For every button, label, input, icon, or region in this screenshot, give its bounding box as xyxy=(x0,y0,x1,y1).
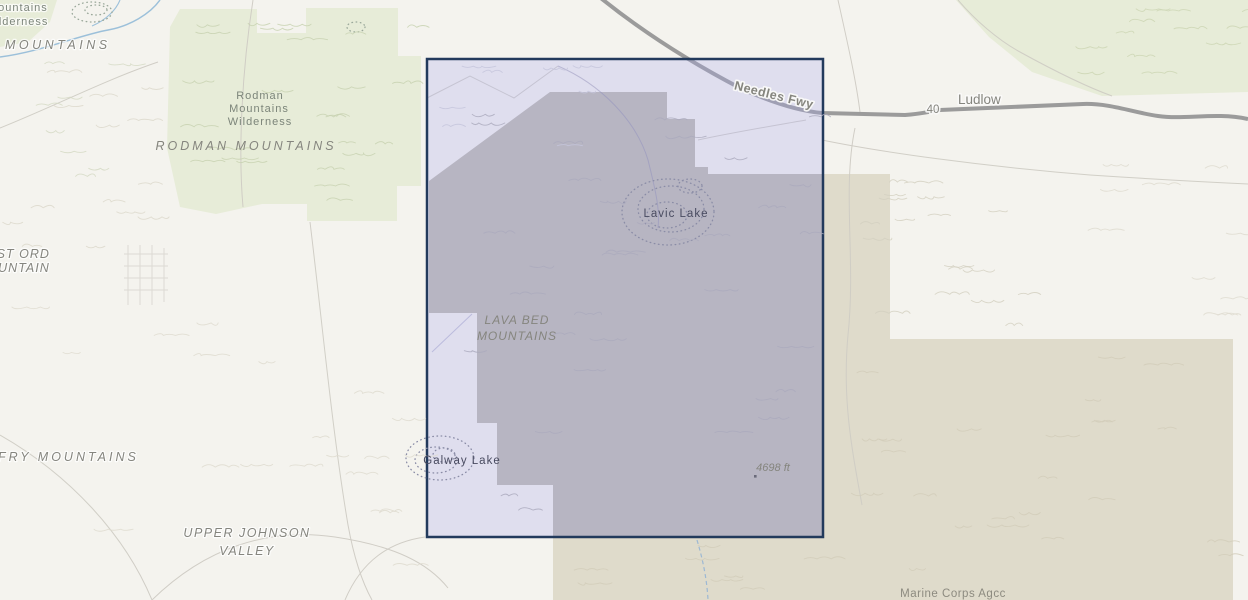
label-topleft-wilderness-line1: Mountains xyxy=(0,2,48,14)
label-galway-lake: Galway Lake xyxy=(423,455,500,467)
label-spot-elevation: 4698 ft xyxy=(756,462,791,474)
label-rodman-wilderness-line2: Mountains xyxy=(229,103,289,115)
label-rodman-mountains: RODMAN MOUNTAINS xyxy=(155,139,336,153)
map-viewport[interactable]: Mountains Wilderness MOUNTAINS Rodman Mo… xyxy=(0,0,1248,600)
label-topleft-mountains: MOUNTAINS xyxy=(5,38,111,52)
label-ludlow: Ludlow xyxy=(958,92,1001,107)
label-rodman-wilderness-line1: Rodman xyxy=(236,90,284,102)
rodman-wilderness-area xyxy=(167,8,421,221)
label-east-ord-line1: EAST ORD xyxy=(0,247,50,261)
label-marine-corps: Marine Corps Agcc xyxy=(900,588,1006,600)
label-lavic-lake: Lavic Lake xyxy=(644,208,709,220)
label-topleft-wilderness-line2: Wilderness xyxy=(0,16,48,28)
label-rodman-wilderness-line3: Wilderness xyxy=(228,116,292,128)
route-shield-40: 40 xyxy=(927,104,940,116)
label-upper-johnson-line1: UPPER JOHNSON xyxy=(183,526,310,540)
label-fry-mountains: FRY MOUNTAINS xyxy=(0,450,139,464)
label-lava-bed-line1: LAVA BED xyxy=(485,313,550,327)
spot-elevation-marker xyxy=(754,475,757,478)
label-east-ord-line2: MOUNTAIN xyxy=(0,261,50,275)
label-lava-bed-line2: MOUNTAINS xyxy=(477,329,557,343)
label-upper-johnson-line2: VALLEY xyxy=(219,544,275,558)
map-canvas[interactable]: Mountains Wilderness MOUNTAINS Rodman Mo… xyxy=(0,0,1248,600)
